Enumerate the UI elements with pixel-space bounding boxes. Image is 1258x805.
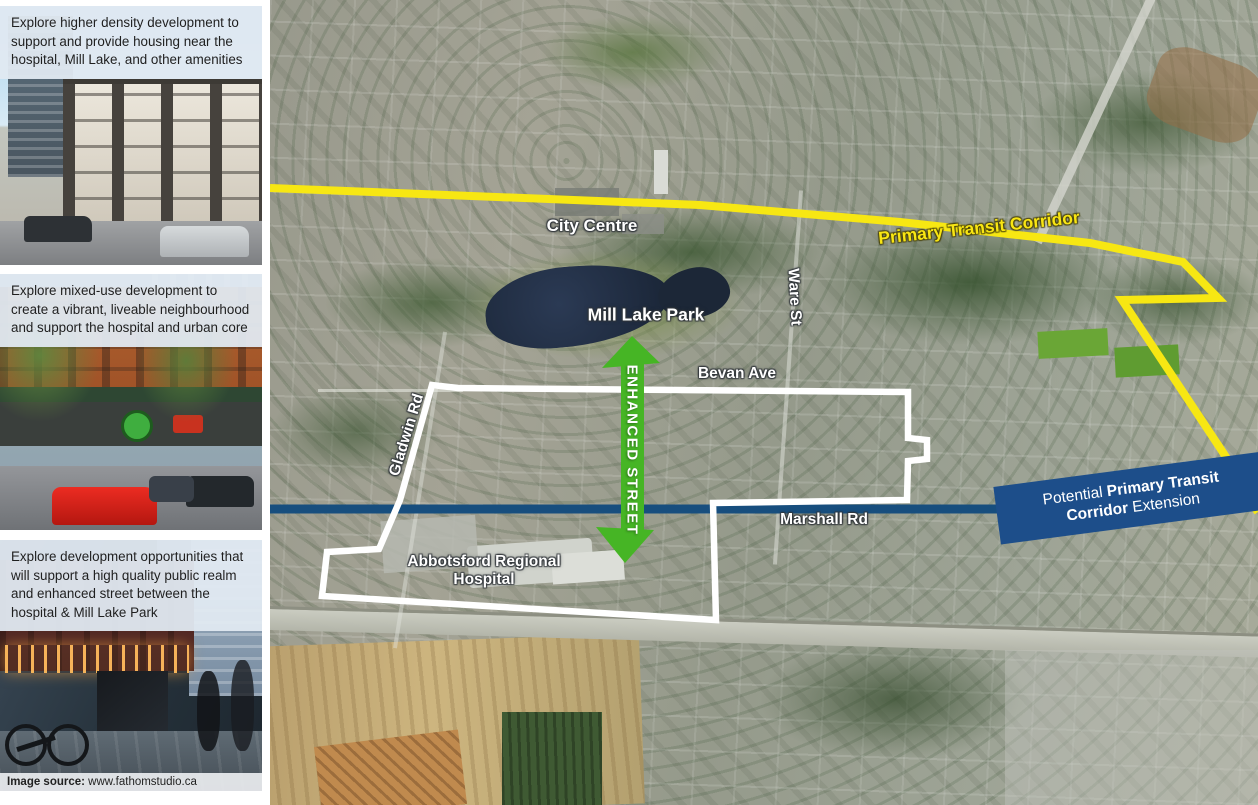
green-shop-sign [121,410,153,442]
enhanced-street-arrow-up-icon [602,336,660,368]
image-source-value: www.fathomstudio.ca [85,776,197,788]
lowrise-apartments [63,84,262,226]
label-mill-lake-park: Mill Lake Park [588,305,705,326]
label-enhanced-street: ENHANCED STREET [624,365,641,536]
string-lights [5,645,188,673]
planning-graphic-page: Explore higher density development to su… [0,0,1258,805]
aerial-map: City Centre Mill Lake Park Ware St Bevan… [270,0,1258,805]
parked-car-red [52,487,157,525]
card-higher-density: Explore higher density development to su… [0,6,262,265]
image-source-label: Image source: [7,776,85,788]
image-source-caption: Image source: www.fathomstudio.ca [0,773,262,791]
sidebar: Explore higher density development to su… [0,0,262,805]
label-abbotsford-regional-hospital: Abbotsford Regional Hospital [407,553,560,589]
parked-car-silver [160,226,249,257]
card-text-higher-density: Explore higher density development to su… [0,6,262,79]
pedestrian [197,671,221,751]
primary-transit-corridor-line [270,188,1258,512]
parked-car-dark [24,216,92,242]
card-public-realm: Image source: www.fathomstudio.ca Explor… [0,540,262,791]
card-text-mixed-use: Explore mixed-use development to create … [0,274,262,347]
label-marshall-rd: Marshall Rd [780,511,868,529]
label-bevan-ave: Bevan Ave [698,365,776,383]
card-mixed-use: Explore mixed-use development to create … [0,274,262,530]
bicycle-wheel [47,724,89,766]
pedestrian [231,660,255,750]
label-ware-st: Ware St [784,268,805,326]
parked-car-dark [186,476,254,507]
label-city-centre: City Centre [547,216,638,236]
card-text-public-realm: Explore development opportunities that w… [0,540,262,631]
parked-car-dark [149,476,194,502]
